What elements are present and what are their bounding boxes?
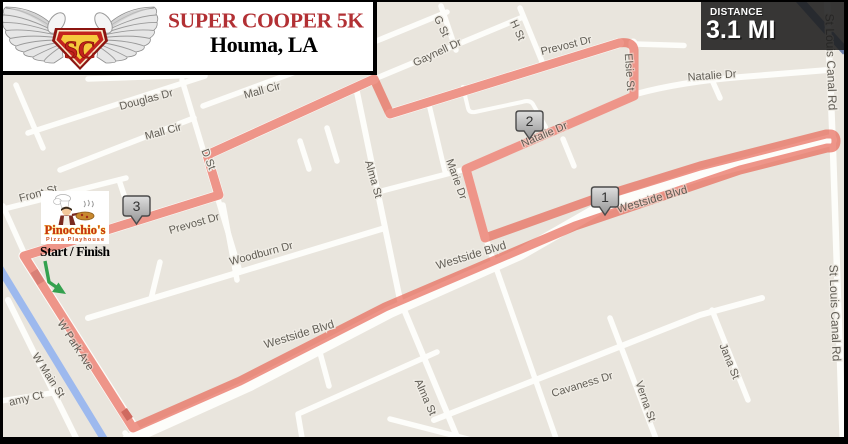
svg-text:Houma, LA: Houma, LA [210,32,318,57]
svg-text:SC: SC [64,37,96,64]
svg-text:3: 3 [133,198,141,214]
svg-text:2: 2 [526,113,534,129]
svg-text:Start / Finish: Start / Finish [40,244,110,259]
svg-text:Pizza Playhouse: Pizza Playhouse [46,237,104,243]
svg-text:SUPER COOPER 5K: SUPER COOPER 5K [168,9,364,33]
svg-text:Pinocchio's: Pinocchio's [45,223,106,237]
svg-text:3.1 MI: 3.1 MI [706,16,775,44]
svg-text:1: 1 [601,189,609,205]
